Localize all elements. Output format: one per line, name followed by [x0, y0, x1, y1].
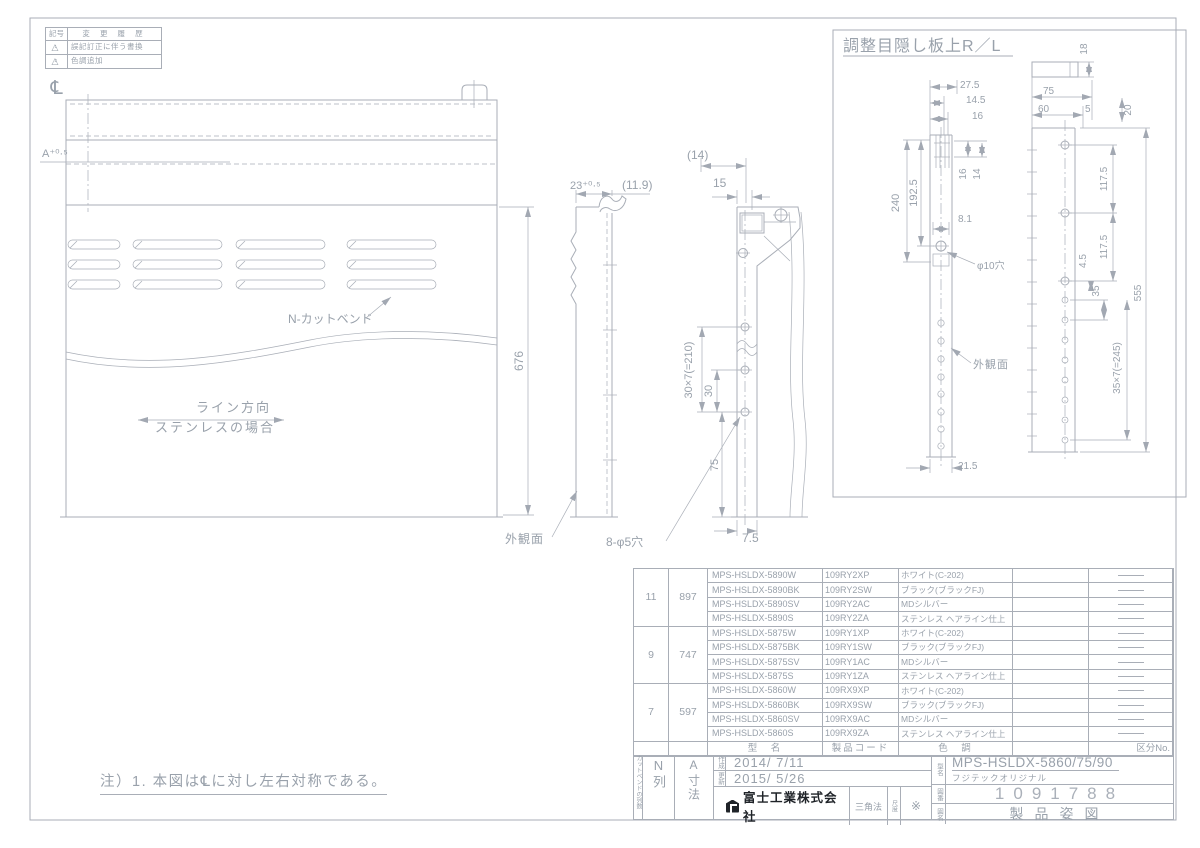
- empty-cell: [1013, 569, 1089, 583]
- product-code-cell: 109RX9XP: [823, 684, 899, 698]
- model-cell: △1MPS-HSLDX-5890W: [708, 569, 823, 583]
- a-column-header: A寸法: [675, 755, 714, 819]
- model-row: 型名 MPS-HSLDX-5860/75/90 フジテックオリジナル: [932, 755, 1173, 785]
- kubun-dash-cell: [1089, 612, 1173, 626]
- revision-col-symbol: 記号: [46, 28, 68, 40]
- dim-16: 16: [972, 111, 984, 122]
- product-code-cell: 109RY1AC: [823, 655, 899, 669]
- detail-title: 調整目隠し板上R／L: [843, 37, 1001, 55]
- dash-line: [1118, 705, 1144, 706]
- scale-value: ※: [900, 787, 931, 825]
- dim-8-1: 8.1: [958, 214, 972, 225]
- empty-cell: [1013, 598, 1089, 612]
- product-code-cell: 109RY2AC: [823, 598, 899, 612]
- model-label: 型名: [934, 763, 944, 776]
- drawing-number: 1091788: [946, 785, 1173, 803]
- dim-14-5: 14.5: [966, 95, 986, 106]
- drawing-name-row: 図名 製品姿図: [932, 804, 1173, 824]
- product-code-cell: 109RX9AC: [823, 713, 899, 727]
- footer-empty-a: [669, 742, 708, 756]
- kubun-dash-cell: [1089, 598, 1173, 612]
- dim-35: 35: [1091, 285, 1102, 297]
- kubun-dash-cell: [1089, 699, 1173, 713]
- updated-label: 更新: [715, 772, 725, 785]
- group-a-value: 597: [669, 684, 708, 742]
- dash-line: [1118, 575, 1144, 576]
- model-cell: MPS-HSLDX-5890SV: [708, 598, 823, 612]
- created-row: 作成 2014/ 7/11: [714, 755, 931, 771]
- model-cell: MPS-HSLDX-5890S: [708, 612, 823, 626]
- revision-history-table: 記号 変 更 履 歴 △1 誤記訂正に伴う書換 △2 色調追加: [45, 27, 162, 69]
- dim-18: 18: [1079, 43, 1090, 55]
- dash-line: [1118, 647, 1144, 648]
- color-cell: ホワイト(C-202): [899, 627, 1013, 641]
- color-cell: ステンレス ヘアライン仕上: [899, 727, 1013, 741]
- product-code-cell: 109RY2SW: [823, 583, 899, 597]
- dim-555: 555: [1133, 284, 1144, 301]
- updated-date: 2015/ 5/26: [726, 771, 931, 786]
- label-stainless-case: ステンレスの場合: [155, 420, 275, 435]
- dash-line: [1118, 662, 1144, 663]
- dim-4-5: 4.5: [1078, 254, 1089, 268]
- revision-triangle-2-icon: △2: [52, 57, 62, 66]
- dim-240: 240: [890, 194, 902, 212]
- dim-11-9: (11.9): [622, 178, 652, 192]
- empty-cell: [1013, 727, 1089, 741]
- model-cell: MPS-HSLDX-5875SV: [708, 655, 823, 669]
- model-cell: △1MPS-HSLDX-5860W: [708, 684, 823, 698]
- empty-cell: [1013, 612, 1089, 626]
- dim-a-tol: A⁺⁰·⁵: [42, 148, 68, 160]
- model-cell: MPS-HSLDX-5875S: [708, 670, 823, 684]
- empty-cell: [1013, 583, 1089, 597]
- empty-cell: [1013, 684, 1089, 698]
- a-column-label: A寸法: [686, 758, 703, 802]
- kubun-dash-cell: [1089, 641, 1173, 655]
- detail-right-dimensions: [1032, 62, 1150, 452]
- empty-cell: [1013, 627, 1089, 641]
- created-date: 2014/ 7/11: [726, 755, 931, 770]
- revision-symbol-1: △1: [46, 41, 68, 54]
- rail-view-dimensions: [666, 158, 770, 541]
- updated-row: 更新 2015/ 5/26: [714, 771, 931, 787]
- revision-text-1: 誤記訂正に伴う書換: [68, 41, 161, 54]
- group-a-value: 747: [669, 627, 708, 685]
- product-code-cell: 109RY2ZA: [823, 612, 899, 626]
- model-cell: MPS-HSLDX-5860S: [708, 727, 823, 741]
- revision-col-history: 変 更 履 歴: [68, 28, 161, 40]
- kubun-dash-cell: [1089, 655, 1173, 669]
- revision-mark-icon: △1: [708, 571, 711, 580]
- dash-line: [1118, 590, 1144, 591]
- dim-14b: 14: [972, 168, 983, 180]
- product-code-cell: 109RY1XP: [823, 627, 899, 641]
- cutbend-note-text: カットベンドの列数: [635, 755, 641, 819]
- kubun-dash-cell: [1089, 684, 1173, 698]
- empty-cell: [1013, 641, 1089, 655]
- color-cell: ブラック(ブラックFJ): [899, 699, 1013, 713]
- dim-20: 20: [1123, 104, 1134, 116]
- color-cell: MDシルバー: [899, 598, 1013, 612]
- dim-60: 60: [1038, 104, 1050, 115]
- color-cell: MDシルバー: [899, 713, 1013, 727]
- dim-5: 5: [1085, 104, 1091, 115]
- group-n-value: 7: [634, 684, 669, 742]
- dim-21-5: 21.5: [958, 461, 978, 472]
- detail-box: [833, 30, 1186, 497]
- product-code-cell: 109RX9SW: [823, 699, 899, 713]
- side-view-dimensions: [552, 190, 650, 537]
- kubun-dash-cell: [1089, 713, 1173, 727]
- company-name: 富士工業株式会社: [743, 787, 849, 825]
- parts-table: 11897△1MPS-HSLDX-5890W109RY2XPホワイト(C-202…: [633, 568, 1174, 757]
- kubun-dash-cell: [1089, 670, 1173, 684]
- revision-mark-icon: △1: [708, 686, 711, 695]
- empty-cell: [1013, 713, 1089, 727]
- title-block-right: 型名 MPS-HSLDX-5860/75/90 フジテックオリジナル 図番 10…: [932, 755, 1173, 819]
- revision-header-row: 記号 変 更 履 歴: [46, 28, 161, 40]
- projection-method: 三角法: [849, 787, 887, 825]
- group-n-value: 11: [634, 569, 669, 627]
- revision-row-2: △2 色調追加: [46, 54, 161, 68]
- drawing-sheet: ℄ A⁺⁰·⁵ 676 N-カットベンド ライン方向 ステンレスの場合 外観面 …: [0, 0, 1200, 848]
- dim-676: 676: [512, 351, 526, 371]
- dash-line: [1118, 604, 1144, 605]
- revision-triangle-1-icon: △1: [52, 43, 62, 52]
- model-subtitle: フジテックオリジナル: [952, 772, 1057, 785]
- front-view-dimensions: [138, 207, 534, 515]
- product-code-cell: 109RY1SW: [823, 641, 899, 655]
- dim-23: 23⁺⁰·⁵: [570, 180, 601, 192]
- color-cell: ブラック(ブラックFJ): [899, 641, 1013, 655]
- dim-14-ref: (14): [687, 148, 708, 162]
- model-cell: △1MPS-HSLDX-5875W: [708, 627, 823, 641]
- dim-192-5: 192.5: [908, 179, 920, 207]
- dim-117-5-b: 117.5: [1099, 234, 1110, 259]
- dash-line: [1118, 733, 1144, 734]
- kubun-dash-cell: [1089, 627, 1173, 641]
- label-gaikan-side: 外観面: [505, 532, 544, 546]
- drawing-number-label: 図番: [934, 788, 944, 801]
- color-cell: ホワイト(C-202): [899, 684, 1013, 698]
- label-line-direction: ライン方向: [196, 400, 271, 415]
- dim-27-5: 27.5: [960, 80, 980, 91]
- color-cell: ブラック(ブラックFJ): [899, 583, 1013, 597]
- dim-16b: 16: [958, 168, 969, 180]
- side-view-linework: [570, 196, 626, 517]
- dim-15: 15: [713, 176, 727, 190]
- empty-cell: [1013, 670, 1089, 684]
- model-cell: △2MPS-HSLDX-5890BK: [708, 583, 823, 597]
- model-cell: MPS-HSLDX-5860SV: [708, 713, 823, 727]
- dash-line: [1118, 676, 1144, 677]
- dim-30x7: 30×7(=210): [683, 342, 695, 399]
- dash-line: [1118, 633, 1144, 634]
- company-logo-icon: [726, 800, 739, 813]
- title-block-middle: 作成 2014/ 7/11 更新 2015/ 5/26 富士工業株式会社 三角法…: [714, 755, 932, 819]
- dash-line: [1118, 719, 1144, 720]
- dim-30: 30: [703, 385, 715, 397]
- centerline-symbol: ℄: [48, 78, 65, 99]
- dim-75-rail: 75: [709, 459, 721, 471]
- color-cell: ホワイト(C-202): [899, 569, 1013, 583]
- cutbend-note-column: カットベンドの列数: [634, 755, 643, 819]
- dim-75-top: 75: [1043, 86, 1055, 97]
- kubun-dash-cell: [1089, 583, 1173, 597]
- group-n-value: 9: [634, 627, 669, 685]
- detail-left-view: [926, 127, 956, 468]
- symmetry-note: 注）1. 本図は℄に対し左右対称である。: [100, 770, 387, 795]
- rail-view-linework: [731, 207, 808, 528]
- n-column-header: N列: [643, 755, 675, 819]
- detail-right-view: [1027, 62, 1078, 462]
- revision-mark-icon: △2: [708, 701, 711, 710]
- title-block: カットベンドの列数 N列 A寸法 作成 2014/ 7/11 更新 2015/ …: [633, 755, 1174, 820]
- company-cell: 富士工業株式会社: [714, 787, 849, 825]
- revision-symbol-2: △2: [46, 55, 68, 68]
- created-label: 作成: [715, 756, 725, 769]
- product-code-cell: 109RY1ZA: [823, 670, 899, 684]
- footer-empty-n: [634, 742, 669, 756]
- drawing-name: 製品姿図: [946, 804, 1173, 824]
- label-n-cutbend: N-カットベンド: [288, 312, 373, 326]
- drawing-name-label: 図名: [934, 808, 944, 821]
- revision-row-1: △1 誤記訂正に伴う書換: [46, 40, 161, 54]
- empty-cell: [1013, 655, 1089, 669]
- kubun-dash-cell: [1089, 727, 1173, 741]
- color-cell: ステンレス ヘアライン仕上: [899, 612, 1013, 626]
- dash-line: [1118, 618, 1144, 619]
- label-8-phi5-holes: 8-φ5穴: [606, 534, 643, 549]
- revision-text-2: 色調追加: [68, 55, 161, 68]
- model-cell: △2MPS-HSLDX-5875BK: [708, 641, 823, 655]
- group-a-value: 897: [669, 569, 708, 627]
- empty-cell: [1013, 699, 1089, 713]
- front-view-linework: [40, 80, 503, 517]
- drawing-number-row: 図番 1091788: [932, 785, 1173, 804]
- color-cell: MDシルバー: [899, 655, 1013, 669]
- model-cell: △2MPS-HSLDX-5860BK: [708, 699, 823, 713]
- dim-7-5: 7.5: [742, 531, 759, 545]
- company-row: 富士工業株式会社 三角法 尺度 ※: [714, 787, 931, 825]
- kubun-dash-cell: [1089, 569, 1173, 583]
- product-code-cell: 109RY2XP: [823, 569, 899, 583]
- scale-label: 尺度: [890, 800, 899, 812]
- louver-slots: [68, 240, 436, 289]
- model-number: MPS-HSLDX-5860/75/90: [952, 755, 1119, 771]
- dash-line: [1118, 690, 1144, 691]
- footer-model-header: 型 名: [708, 742, 823, 756]
- color-cell: ステンレス ヘアライン仕上: [899, 670, 1013, 684]
- revision-mark-icon: △2: [708, 643, 711, 652]
- label-phi10-hole: φ10穴: [977, 259, 1005, 272]
- n-column-label: N列: [649, 758, 668, 790]
- revision-mark-icon: △1: [708, 629, 711, 638]
- label-gaikan-detail: 外観面: [973, 357, 1009, 371]
- product-code-cell: 109RX9ZA: [823, 727, 899, 741]
- annotation-texts: ℄ A⁺⁰·⁵ 676 N-カットベンド ライン方向 ステンレスの場合 外観面 …: [42, 37, 1144, 549]
- footer-code-header: 製品コード: [823, 742, 899, 756]
- revision-mark-icon: △2: [708, 585, 711, 594]
- dim-117-5-a: 117.5: [1099, 166, 1110, 191]
- dim-35x7: 35×7(=245): [1112, 342, 1123, 394]
